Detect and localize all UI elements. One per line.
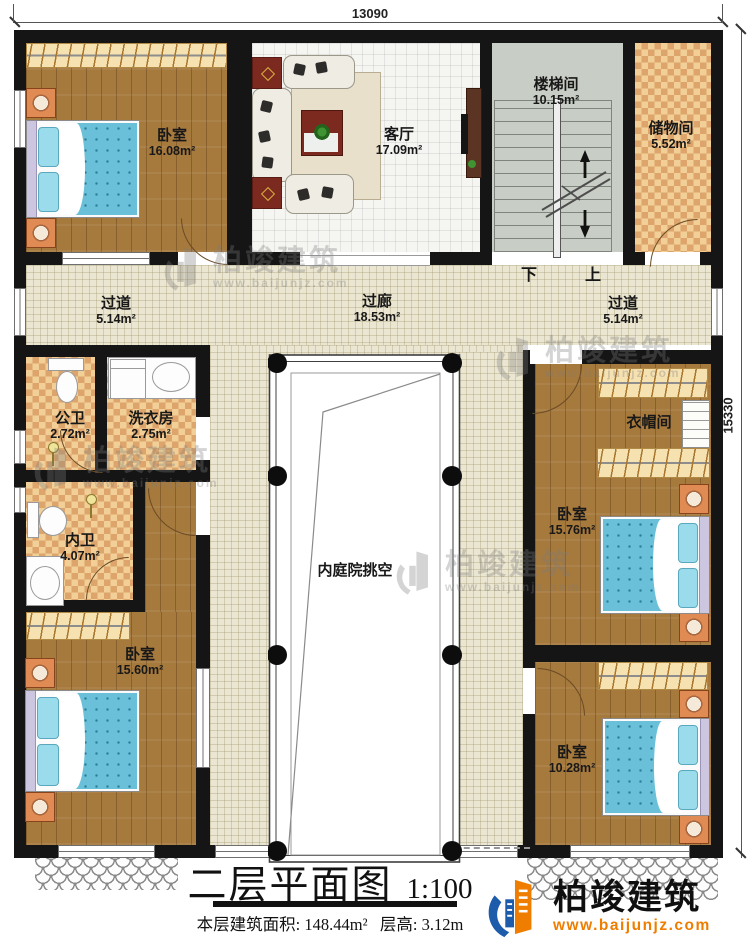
bed-sheet (55, 693, 84, 789)
nightstand (679, 814, 709, 844)
nightstand (25, 658, 55, 688)
window-inner (196, 668, 210, 768)
room-label-laundry: 洗衣房2.75m² (101, 410, 201, 442)
pillow (678, 725, 698, 765)
window (58, 845, 155, 858)
pillow (38, 127, 59, 167)
walkway-left-floor (210, 345, 277, 845)
watermark-logo-icon (492, 336, 538, 382)
room-label-stairwell: 楼梯间10.15m² (506, 76, 606, 108)
nightstand (679, 484, 709, 514)
double-bed (25, 690, 140, 792)
sofa (283, 55, 355, 89)
floor-plan-canvas: 柏竣建筑 www.baijunjz.com 柏竣建筑 www.baijunjz.… (0, 0, 750, 943)
bed-sheet (653, 519, 681, 611)
nightstand (679, 690, 709, 718)
room-label-living: 客厅17.09m² (349, 126, 449, 158)
floor-mat (252, 177, 282, 209)
dimension-line-right (741, 30, 742, 858)
pillow (678, 770, 698, 810)
wardrobe-rack (598, 662, 708, 690)
wall-private-bath-east (133, 482, 145, 612)
room-label-bedroom-bottom-right: 卧室10.28m² (522, 744, 622, 776)
bed-sheet (654, 721, 682, 813)
room-label-courtyard-void: 内庭院挑空 (305, 562, 405, 579)
watermark: 柏竣建筑 www.baijunjz.com (392, 550, 581, 596)
watermark-name: 柏竣建筑 (83, 447, 219, 476)
nightstand (679, 612, 709, 642)
room-label-corridor-left: 过道5.14m² (66, 295, 166, 327)
bed-sheet (56, 123, 85, 215)
coffee-table (301, 110, 343, 156)
sofa-cushion (260, 100, 273, 113)
room-label-bedroom-top-left: 卧室16.08m² (122, 127, 222, 159)
sofa-cushion (261, 156, 273, 168)
pillow (38, 172, 59, 212)
pillow (37, 697, 58, 739)
wall-bedrooms-right-divider (523, 645, 711, 662)
wall-stair-storage (623, 43, 635, 265)
company-logo-icon (483, 877, 545, 939)
company-logo: 柏竣建筑 www.baijunjz.com (483, 877, 711, 939)
watermark-url: www.baijunjz.com (83, 476, 219, 492)
courtyard-void-drawing (268, 350, 464, 864)
wall-living-south (430, 252, 492, 265)
shower-head (86, 494, 97, 505)
watermark-url: www.baijunjz.com (445, 580, 581, 596)
nightstand (26, 88, 56, 118)
watermark-url: www.baijunjz.com (545, 366, 681, 382)
room-label-gallery: 过廊18.53m² (327, 293, 427, 325)
company-website: www.baijunjz.com (553, 915, 711, 937)
window (570, 845, 690, 858)
dimension-extension (13, 4, 14, 23)
roof-tiles (35, 858, 178, 890)
watermark-name: 柏竣建筑 (213, 247, 349, 276)
floor-mat (252, 57, 282, 89)
wall-bedroom-bl-east (196, 768, 210, 845)
wall-bottom (26, 845, 58, 858)
wall-laundry-east (196, 357, 210, 417)
wall-top (14, 30, 723, 43)
stair-down-label: 下 (521, 261, 537, 285)
stair-up-label: 上 (585, 261, 601, 285)
wall-bath-north (14, 345, 210, 357)
sofa-cushion (315, 61, 328, 74)
window (14, 288, 26, 336)
sofa (285, 174, 354, 214)
wardrobe-rack (26, 43, 227, 68)
wall-bottom (690, 845, 711, 858)
watermark-name: 柏竣建筑 (445, 551, 581, 580)
toilet-bowl (56, 371, 78, 403)
window (14, 487, 26, 513)
sofa (252, 88, 292, 182)
wardrobe-rack (26, 612, 130, 640)
sink (30, 566, 60, 600)
window (711, 288, 723, 336)
wall-storage-south (623, 252, 645, 265)
shower-stem (90, 504, 92, 518)
headboard (699, 517, 709, 613)
dimension-extension (722, 4, 723, 23)
floor-height-value: 3.12m (422, 915, 464, 934)
headboard (27, 121, 37, 217)
tv (461, 114, 468, 154)
watermark-logo-icon (30, 446, 76, 492)
sofa-cushion (293, 63, 306, 76)
washing-machine (110, 359, 146, 399)
watermark: 柏竣建筑 www.baijunjz.com (30, 446, 219, 492)
wall-bedroom-living (227, 43, 252, 265)
watermark-url: www.baijunjz.com (213, 276, 349, 292)
sofa-cushion (258, 130, 271, 143)
watermark-logo-icon (160, 246, 206, 292)
plant (314, 124, 330, 140)
room-label-bedroom-right-middle: 卧室15.76m² (522, 506, 622, 538)
room-label-private-bathroom: 内卫4.07m² (30, 532, 130, 564)
stair-break-symbol (492, 148, 623, 240)
area-label: 本层建筑面积: (197, 915, 301, 934)
headboard (26, 691, 36, 791)
wall-storage-south (700, 252, 723, 265)
sofa-cushion (321, 186, 334, 199)
wardrobe-rack (597, 448, 710, 478)
title-underline (213, 901, 457, 907)
plant-small (468, 160, 476, 168)
nightstand (26, 218, 56, 248)
floor-height-label: 层高: (380, 915, 418, 934)
wall-bedroom-tl-south (26, 252, 62, 265)
room-label-bedroom-bottom-left: 卧室15.60m² (90, 646, 190, 678)
sink (152, 362, 190, 392)
pillow (678, 568, 698, 608)
room-label-cloakroom: 衣帽间 (599, 414, 699, 431)
company-name: 柏竣建筑 (553, 880, 711, 915)
watermark: 柏竣建筑 www.baijunjz.com (492, 336, 681, 382)
watermark-name: 柏竣建筑 (545, 337, 681, 366)
wall-bedroom-bl-east (196, 535, 210, 668)
pillow (678, 523, 698, 563)
pillow (37, 744, 58, 786)
headboard (700, 719, 709, 815)
window (14, 90, 26, 148)
wall-right (711, 43, 723, 858)
watermark: 柏竣建筑 www.baijunjz.com (160, 246, 349, 292)
room-label-storage: 储物间5.52m² (621, 120, 721, 152)
window (62, 252, 150, 265)
sofa-cushion (297, 188, 310, 201)
dimension-line-top (14, 22, 723, 23)
room-label-corridor-right: 过道5.14m² (573, 295, 673, 327)
toilet-tank (48, 358, 84, 371)
area-value: 148.44m² (304, 915, 367, 934)
nightstand (25, 792, 55, 822)
dimension-height: 15330 (721, 386, 736, 446)
dimension-width: 13090 (325, 6, 415, 21)
plan-info: 本层建筑面积: 148.44m² 层高: 3.12m (175, 911, 485, 935)
wall-suite-west (523, 714, 535, 845)
